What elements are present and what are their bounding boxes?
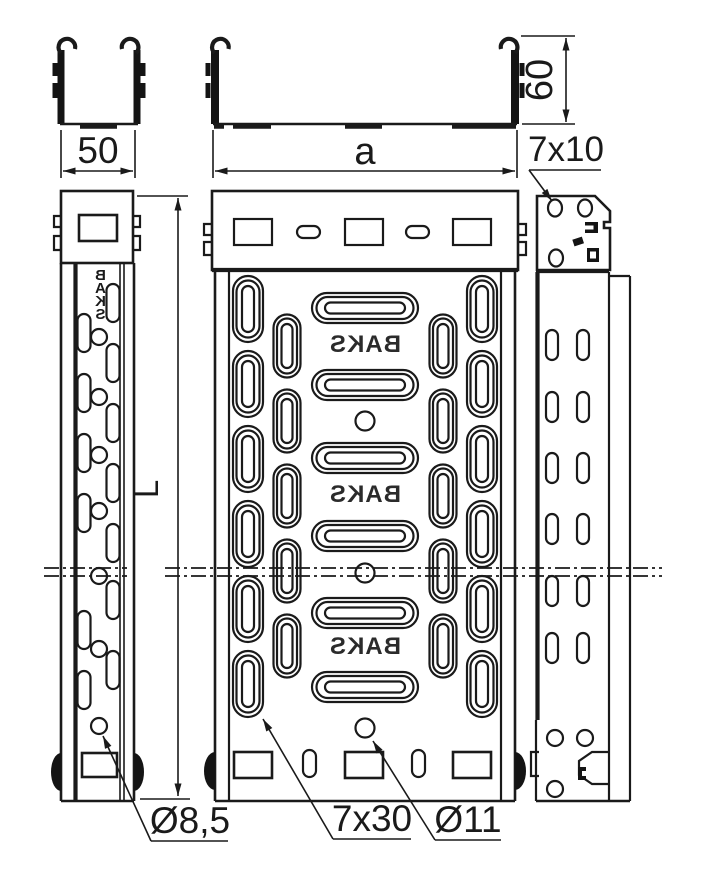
end-slot-target — [548, 200, 562, 217]
side-hole-target — [91, 718, 107, 734]
brand-mark-plan: BAKS — [329, 331, 401, 358]
dim-width-main-label: a — [354, 131, 376, 173]
dimension-50: 50 — [61, 130, 135, 178]
break-lines — [44, 568, 662, 576]
cable-tray-technical-drawing: 50 a 60 7x10 B A K — [0, 0, 719, 888]
base-hole-label: Ø11 — [434, 799, 501, 840]
dimension-a: a — [213, 130, 517, 178]
side-hole-label: Ø8,5 — [150, 800, 230, 841]
brand-mark-side: B A K S — [95, 267, 106, 323]
technical-drawing-canvas: 50 a 60 7x10 B A K — [0, 0, 719, 888]
end-slot-label: 7x10 — [528, 130, 604, 169]
label-slot-7x30: 7x30 — [263, 719, 412, 839]
view-side-right — [531, 196, 630, 801]
dim-length-label: L — [128, 480, 165, 498]
dim-width-small-label: 50 — [77, 130, 118, 171]
base-slot-label: 7x30 — [332, 798, 412, 839]
label-7x10: 7x10 — [528, 130, 604, 201]
view-cross-section-50 — [53, 39, 146, 126]
view-cross-section-a — [206, 39, 525, 126]
brand-mark-plan: BAKS — [329, 633, 401, 660]
view-plan-bottom: BAKS BAKS BAKS — [204, 191, 526, 801]
base-hole-target — [356, 719, 375, 738]
dimension-60: 60 — [519, 36, 575, 124]
brand-mark-plan: BAKS — [329, 481, 401, 508]
dim-height-label: 60 — [519, 59, 561, 101]
brand-letter: S — [95, 306, 105, 323]
dimension-L: L — [128, 196, 190, 799]
